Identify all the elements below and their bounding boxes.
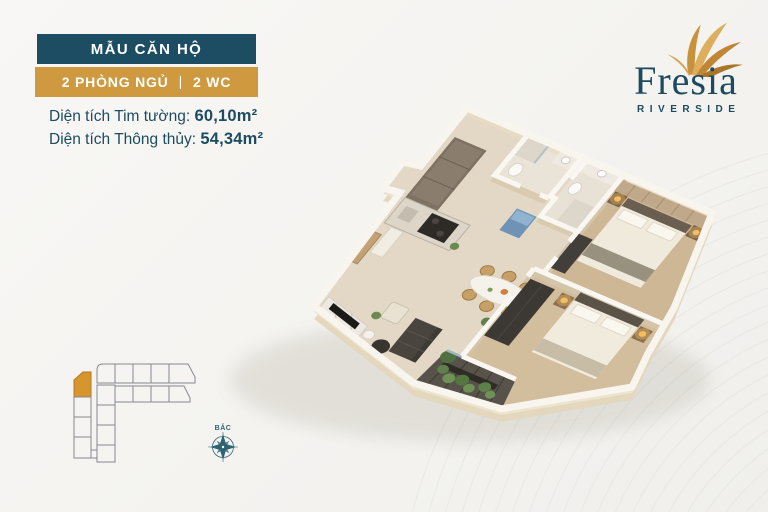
logo-subtitle: RIVERSIDE (606, 104, 766, 115)
area-value-2: 54,34m² (200, 130, 263, 148)
area-value-1: 60,10m² (194, 107, 257, 125)
title-banner: MẪU CĂN HỘ (37, 34, 256, 64)
wc-label: 2 WC (193, 74, 231, 90)
keyplan: BẮC (38, 350, 258, 482)
subtitle-divider: | (179, 73, 183, 89)
page-title: MẪU CĂN HỘ (91, 41, 203, 58)
keyplan-row-2 (115, 386, 190, 402)
compass-rose-icon: BẮC (208, 423, 238, 462)
logo-name: Fresia (606, 59, 766, 103)
keyplan-row-1 (97, 364, 195, 383)
keyplan-column-a (74, 397, 91, 458)
bedrooms-label: 2 PHÒNG NGỦ (62, 74, 169, 90)
area-info: Diện tích Tim tường: 60,10m² Diện tích T… (49, 105, 263, 151)
keyplan-column-b (91, 385, 115, 462)
keyplan-highlight-unit (74, 372, 91, 397)
area-line-2: Diện tích Thông thủy: 54,34m² (49, 128, 263, 151)
header: MẪU CĂN HỘ 2 PHÒNG NGỦ | 2 WC Diện tích … (35, 34, 263, 151)
compass-north-label: BẮC (215, 423, 232, 432)
poster: MẪU CĂN HỘ 2 PHÒNG NGỦ | 2 WC Diện tích … (0, 0, 768, 512)
area-line-1: Diện tích Tim tường: 60,10m² (49, 105, 263, 128)
brand-logo: Fresia RIVERSIDE (606, 25, 766, 115)
subtitle-banner: 2 PHÒNG NGỦ | 2 WC (35, 67, 258, 97)
